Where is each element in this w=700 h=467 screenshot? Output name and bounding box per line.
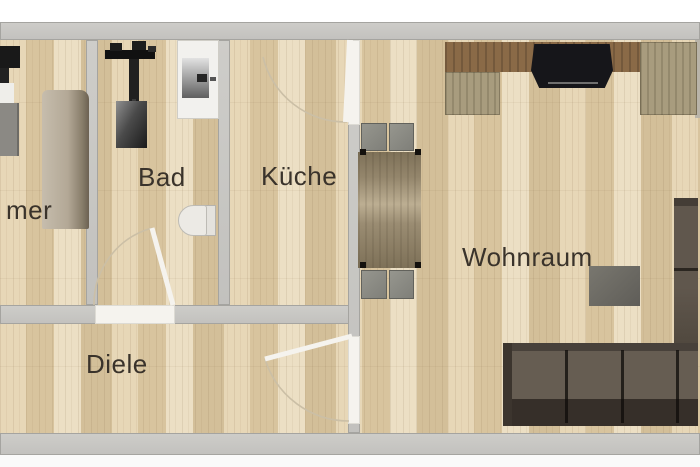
chair-arm-mark <box>415 149 421 155</box>
kueche-door-leaf <box>346 40 350 122</box>
diele-door-arc <box>265 359 349 421</box>
shower-knob-left <box>110 43 122 51</box>
shower-knob-right <box>132 41 146 50</box>
cropped-tv-foot <box>0 68 9 83</box>
dining-chair <box>389 270 414 299</box>
coffee-table <box>589 266 640 306</box>
dining-chair <box>389 123 414 151</box>
room-label-kueche: Küche <box>261 161 337 192</box>
chair-arm-mark <box>415 262 421 268</box>
sofa-bottom <box>503 343 698 426</box>
room-label-diele: Diele <box>86 349 148 380</box>
sofa-cushion-gap <box>565 350 568 423</box>
diele-door-leaf <box>265 336 352 359</box>
chair-arm-mark <box>360 262 366 268</box>
sink-tap-dots <box>210 77 216 81</box>
sink-tap <box>197 74 207 82</box>
room-label-wohnraum: Wohnraum <box>462 242 593 273</box>
shower-pipe <box>129 59 139 101</box>
cropped-cabinet <box>0 103 19 156</box>
bad-door-arc <box>94 228 152 305</box>
shower-tray <box>116 101 147 148</box>
sofa-left-arm <box>503 343 512 426</box>
chair-arm-mark <box>360 149 366 155</box>
desk-chair-edge <box>548 82 598 84</box>
shower-knob-end <box>148 46 156 52</box>
dining-chair <box>361 270 387 299</box>
sofa-cushion-gap <box>676 350 679 423</box>
cropped-white-unit <box>0 83 14 103</box>
kueche-door-arc <box>263 57 347 122</box>
side-panel-right <box>640 42 697 115</box>
room-label-bad: Bad <box>138 162 186 193</box>
sofa-cushion-gap <box>621 350 624 423</box>
cropped-tv <box>0 46 20 68</box>
side-panel-left <box>445 72 500 115</box>
bad-door-leaf <box>152 228 173 305</box>
toilet-bowl <box>178 205 207 236</box>
room-label-zimmer-cropped: mer <box>6 195 52 226</box>
sofa-arm-seam <box>674 268 698 271</box>
dining-table <box>358 152 421 268</box>
dining-chair <box>361 123 387 151</box>
floorplan: mer Bad Küche Diele Wohnraum <box>0 0 700 467</box>
